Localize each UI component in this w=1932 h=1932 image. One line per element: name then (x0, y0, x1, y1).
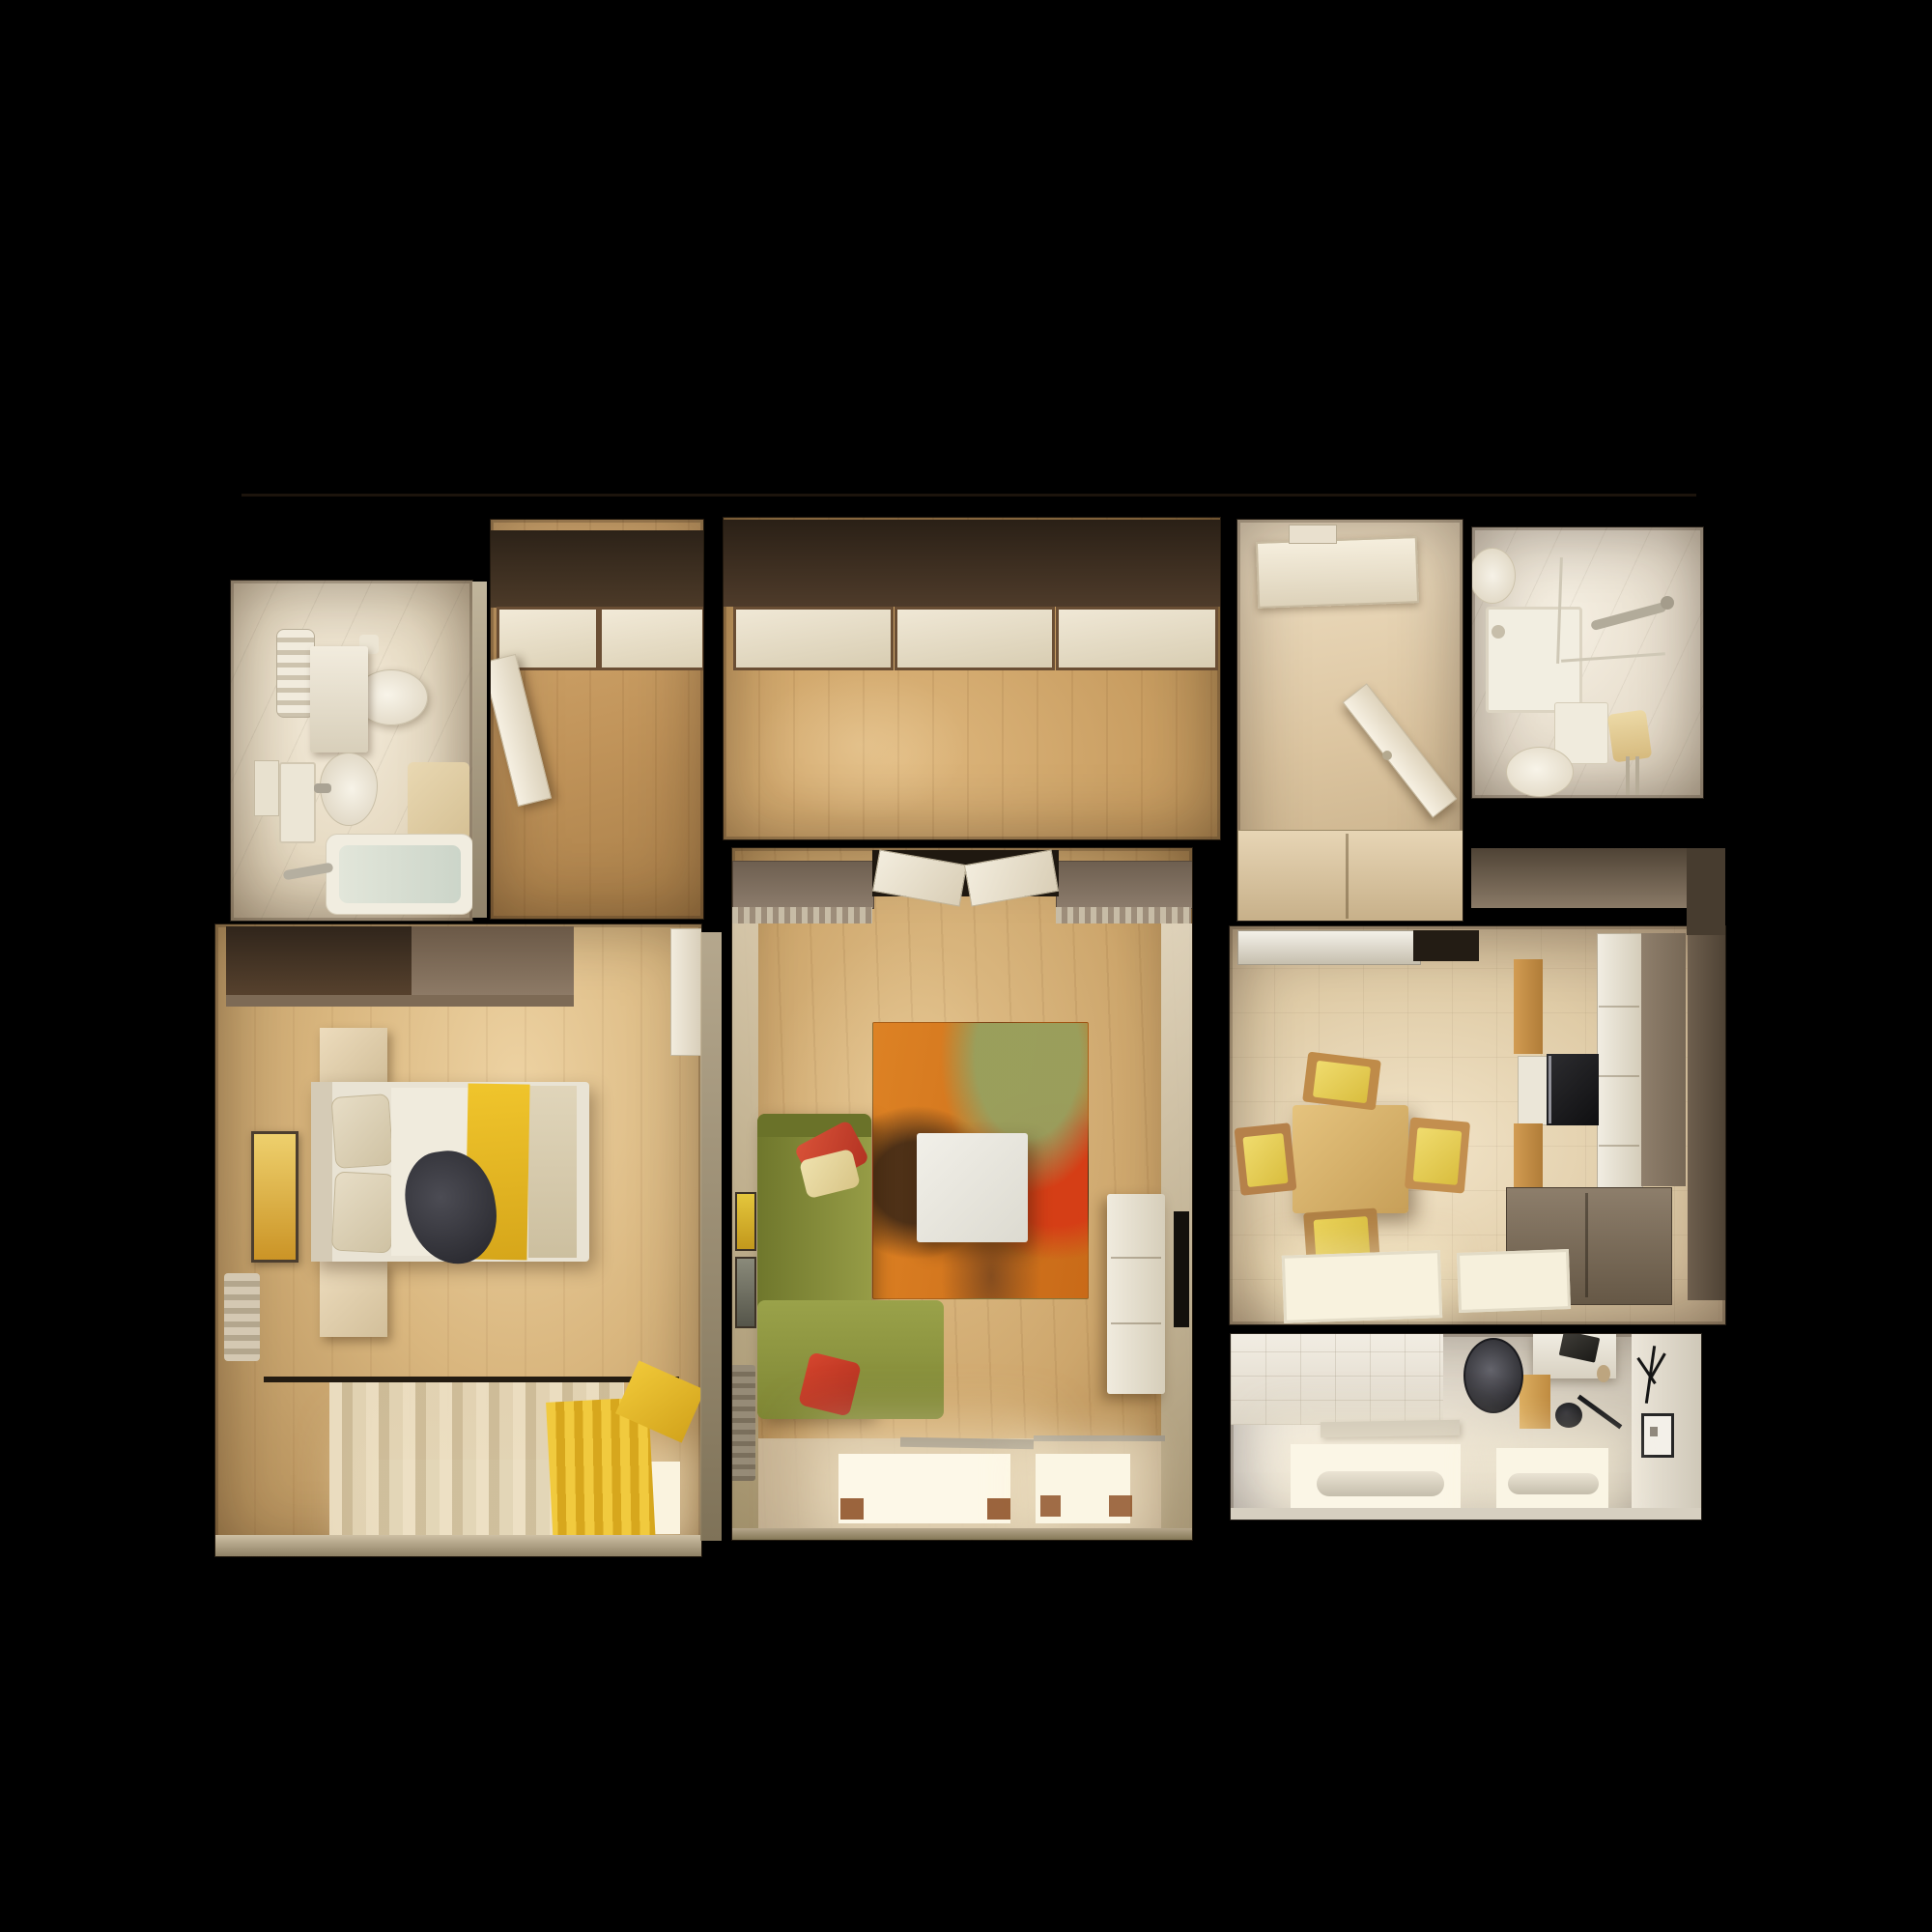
bathtub-water (339, 845, 461, 903)
window-frame-mark (987, 1498, 1010, 1520)
window-sill-board (1321, 1420, 1460, 1438)
bottom-wall-face (1231, 1508, 1701, 1520)
shower-head (1661, 596, 1674, 610)
room-hall (723, 517, 1221, 840)
tv-panel (1174, 1211, 1189, 1327)
corner-sink (1471, 548, 1516, 604)
wardrobe-top (491, 530, 703, 608)
shower-drain (1492, 625, 1505, 639)
room-bathroom-1 (230, 580, 473, 922)
nightstand (320, 1262, 387, 1337)
towel-radiator (276, 629, 315, 718)
window (1282, 1250, 1442, 1323)
counter-seam (1599, 1075, 1639, 1077)
bedroom-right-wall-face (700, 932, 722, 1541)
bathroom1-right-wall-face (472, 582, 487, 918)
desk-cabinet (1520, 1375, 1550, 1429)
door-track (1034, 1435, 1165, 1441)
wardrobe-sliding-panel (895, 607, 1055, 670)
dining-table (1293, 1105, 1408, 1213)
wall-pipe (1635, 756, 1639, 795)
room-closet-hall (490, 519, 704, 920)
floral-duvet-fold (528, 1086, 577, 1258)
oak-cabinet (1514, 1123, 1543, 1187)
room-living-room (731, 847, 1193, 1541)
counter-seam (1599, 1006, 1639, 1008)
room-entry-corridor (1236, 519, 1463, 922)
wardrobe-front-band (226, 995, 574, 1007)
towel (1607, 709, 1653, 762)
built-in-oven (1547, 1054, 1599, 1125)
nightstand (320, 1028, 387, 1082)
wall-pipe (1626, 756, 1630, 795)
wardrobe-sliding-panel (733, 607, 894, 670)
tiled-wall (1231, 1334, 1443, 1425)
light-streak (754, 668, 967, 822)
sink-faucet (314, 783, 331, 793)
radiator-tube (1508, 1473, 1599, 1494)
counter-column (1597, 933, 1643, 1213)
top-cabinet (732, 861, 874, 909)
counter-seam (1599, 1145, 1639, 1147)
oven-handle (1548, 1056, 1551, 1123)
chair-cushion (1313, 1061, 1371, 1104)
laundry-unit (279, 762, 316, 843)
upper-cabinet-band (1641, 933, 1686, 1186)
room-kitchen (1229, 925, 1726, 1325)
extractor-hood (1413, 930, 1479, 961)
door-light (1289, 525, 1337, 544)
sideboard-seam (1111, 1257, 1161, 1259)
window-frame-mark (1109, 1495, 1132, 1517)
top-cabinets (1237, 930, 1421, 965)
right-wall-cabinets (1688, 933, 1725, 1300)
toilet (1506, 747, 1574, 797)
bath-mat (408, 762, 469, 839)
desk-lamp-arm (1577, 1395, 1623, 1430)
chair-cushion (1242, 1133, 1288, 1187)
kitchen-upper-corner (1687, 848, 1725, 935)
radiator (731, 1365, 755, 1481)
picture-art (1650, 1427, 1658, 1436)
radiator (224, 1273, 260, 1361)
shower-set (1590, 602, 1667, 631)
sideboard (1107, 1194, 1165, 1394)
chair-cushion (1413, 1127, 1463, 1185)
coffee-table (917, 1133, 1028, 1242)
window-glow (838, 1454, 1010, 1523)
wall-picture (251, 1131, 298, 1263)
wardrobe-sliding-panel (1056, 607, 1218, 670)
mouse (1597, 1365, 1610, 1382)
bottom-wall-face (215, 1535, 701, 1556)
headboard (311, 1082, 332, 1262)
wardrobe-dark (226, 926, 412, 995)
wardrobe-sliding-panel (599, 607, 704, 670)
floorplan-canvas (0, 0, 1932, 1932)
radiator-tube (1317, 1471, 1444, 1496)
sideboard-seam (1111, 1322, 1161, 1324)
window (1457, 1249, 1571, 1313)
bottom-wall-face (732, 1528, 1192, 1540)
wall-picture-frame (1641, 1413, 1674, 1458)
mirror (254, 760, 279, 816)
entrance-door (1256, 536, 1419, 609)
kitchen-upper-band (1471, 848, 1687, 908)
open-door (1343, 683, 1458, 817)
closet-seam (1346, 834, 1349, 919)
floral-pillow (331, 1171, 395, 1253)
cabinet-seam (1585, 1193, 1588, 1297)
wall-cabinet (310, 646, 368, 753)
room-study-loggia (1230, 1333, 1702, 1520)
wall-picture (735, 1192, 756, 1251)
floral-pillow (330, 1094, 393, 1169)
window-frame-mark (1040, 1495, 1061, 1517)
oak-cabinet (1514, 959, 1543, 1054)
office-chair (1463, 1338, 1523, 1413)
top-cabinet (1056, 861, 1193, 909)
plan-top-edge (241, 494, 1696, 497)
microwave (1518, 1056, 1548, 1125)
bedroom-door (670, 928, 702, 1056)
door-handle (1382, 751, 1392, 760)
room-bathroom-2 (1471, 526, 1704, 799)
room-bedroom (214, 923, 702, 1557)
window-frame-mark (840, 1498, 864, 1520)
wardrobe-top (724, 520, 1220, 607)
wardrobe-taupe (412, 926, 574, 995)
built-in-closet (1237, 830, 1463, 922)
wall-picture (735, 1257, 756, 1328)
open-door (490, 654, 552, 807)
desk-lamp-head (1555, 1403, 1582, 1428)
top-cabinet-vents (1056, 907, 1191, 923)
